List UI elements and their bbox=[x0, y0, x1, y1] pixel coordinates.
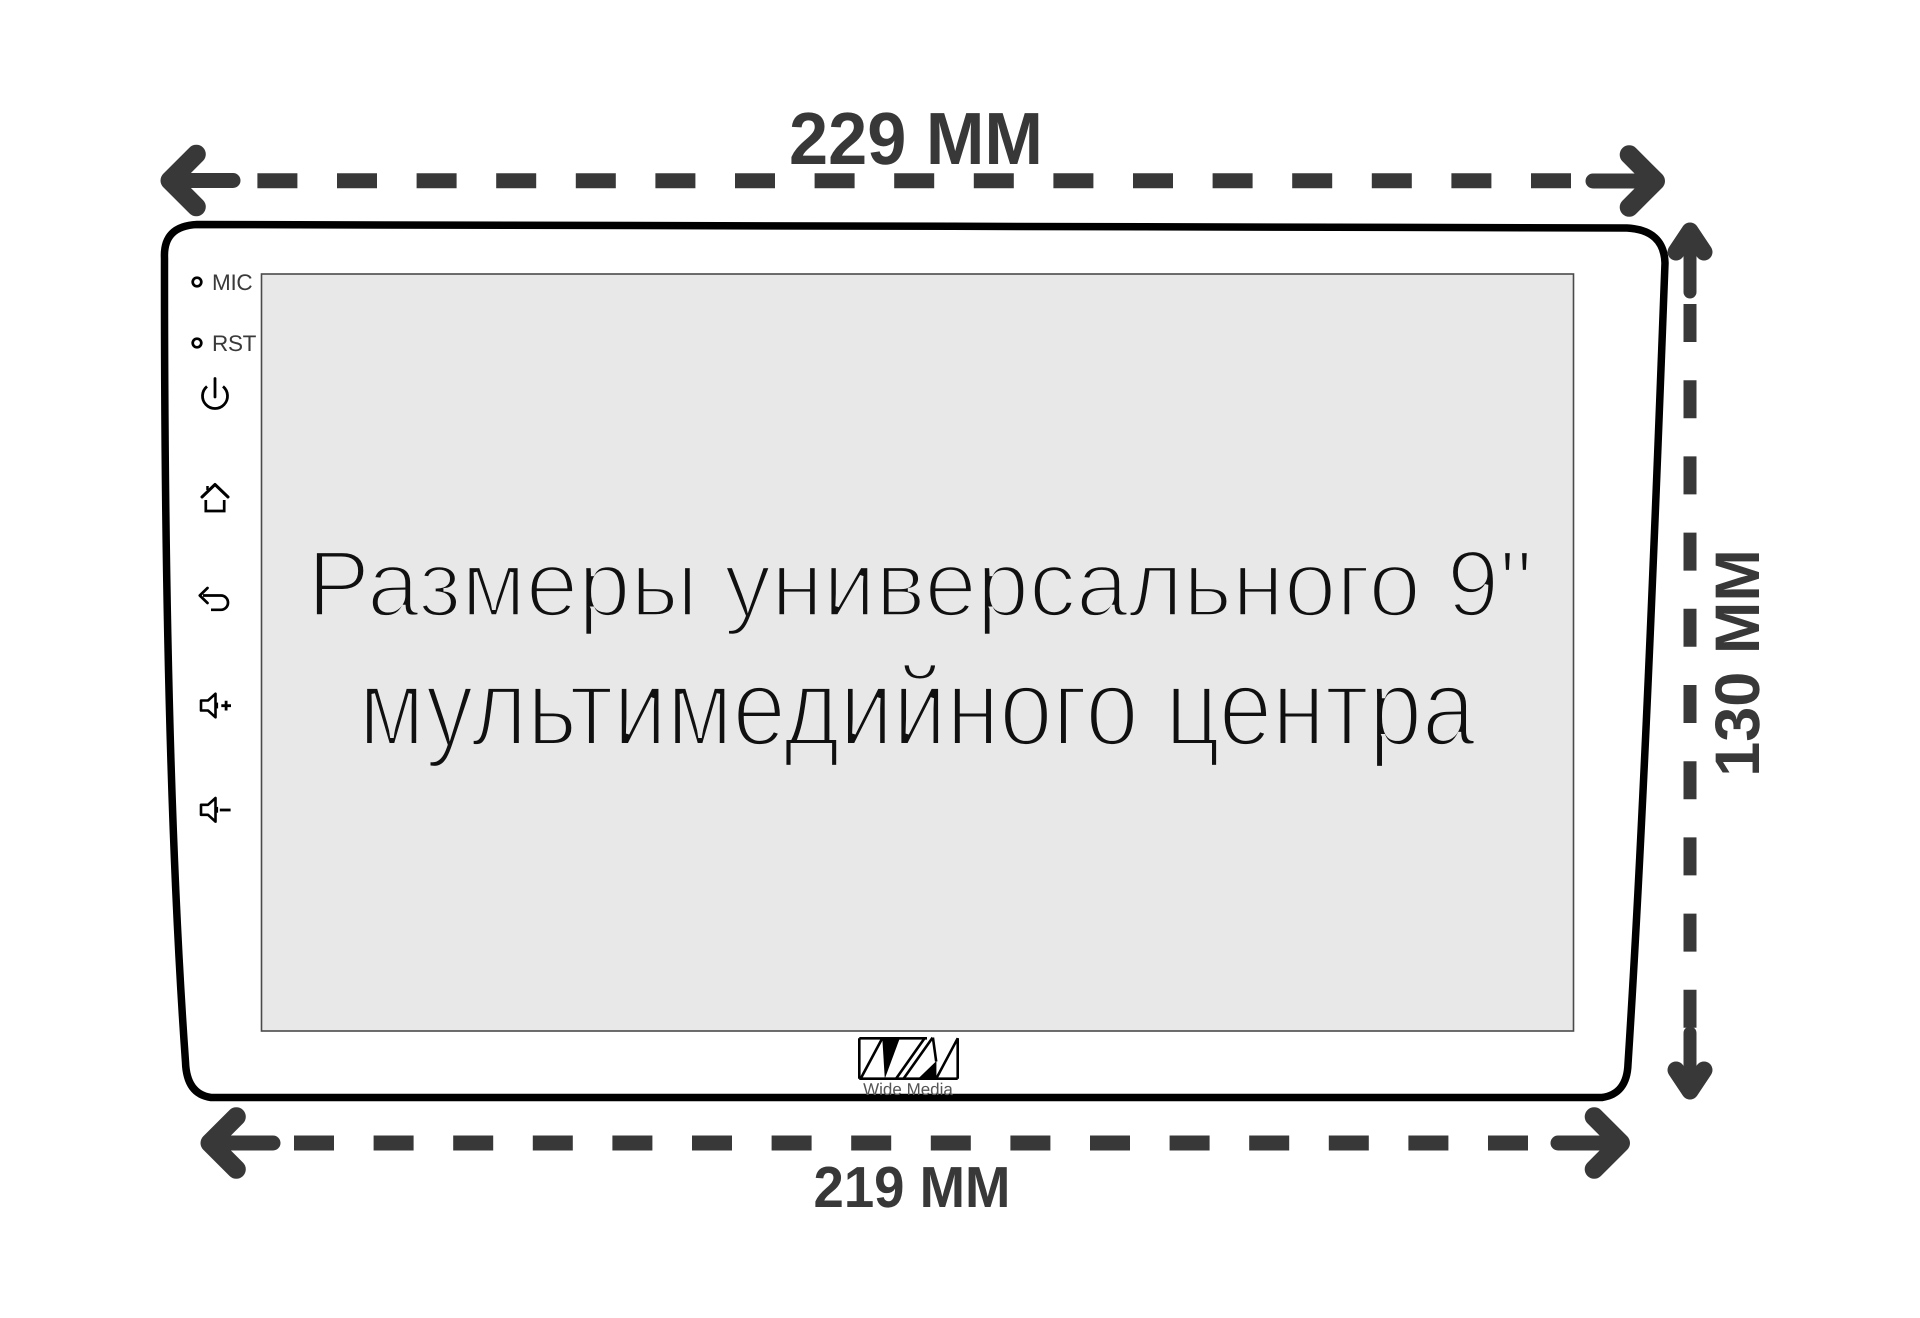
svg-text:RST: RST bbox=[212, 331, 257, 356]
svg-text:130 MM: 130 MM bbox=[1703, 549, 1773, 777]
svg-text:219 MM: 219 MM bbox=[814, 1155, 1011, 1220]
svg-text:Размеры универсального 9": Размеры универсального 9" bbox=[307, 531, 1532, 636]
svg-text:мультимедийного центра: мультимедийного центра bbox=[359, 646, 1476, 769]
svg-text:Wide Media: Wide Media bbox=[863, 1080, 953, 1099]
svg-text:229 MM: 229 MM bbox=[789, 97, 1043, 180]
svg-text:MIC: MIC bbox=[212, 270, 252, 295]
